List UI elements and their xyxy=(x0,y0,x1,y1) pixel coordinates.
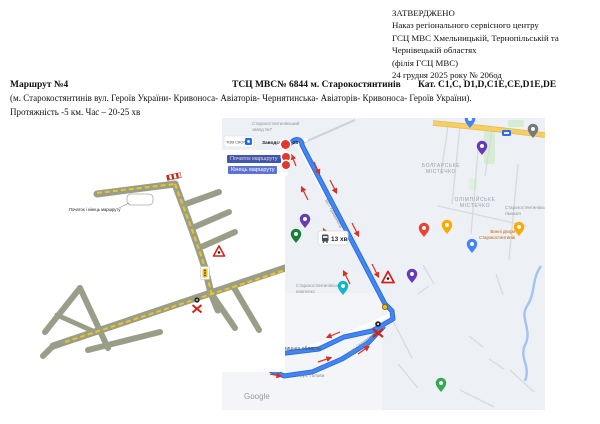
route-flag-icon xyxy=(167,173,182,181)
schematic-map: Початок і кінець маршруту xyxy=(35,150,285,372)
route-start-label: Початок маршруту xyxy=(227,155,281,163)
approval-line: Чернівецькій областях xyxy=(392,44,596,56)
poi-top-label: Старокостянтинівський xyxy=(252,121,300,126)
park-area xyxy=(508,120,524,127)
street-label: вул. Голови xyxy=(300,373,325,378)
approval-block: ЗАТВЕРДЖЕНО Наказ регіонального сервісно… xyxy=(392,7,596,81)
poi-complex-label: Старокостянтинівський xyxy=(296,283,344,288)
district-label: МІСТЕЧКО xyxy=(426,169,456,175)
poi-school-label: гімназія xyxy=(505,211,521,216)
district-label: МІСТЕЧКО xyxy=(460,203,490,209)
route-parameters: Протяжність -5 км. Час – 20-25 хв xyxy=(10,107,140,117)
route-description: (м. Старокостянтинів вул. Героїв України… xyxy=(10,93,472,103)
license-categories: Кат. C1,C, D1,D,C1E,CE,D1E,DE xyxy=(418,80,556,90)
district-label: ОЛІМПІЙСЬКЕ xyxy=(455,195,496,203)
callout-bubble xyxy=(127,194,153,205)
poi-shop-label: Винні двори xyxy=(490,229,515,234)
callout-leader-line xyxy=(119,203,129,208)
google-watermark: Google xyxy=(244,392,270,401)
poi-school-label: Старокостянтинівська xyxy=(505,205,545,210)
approval-line: ГСЦ МВС Хмельницькій, Тернопільській та xyxy=(392,32,596,44)
route-number: Маршрут №4 xyxy=(10,80,68,90)
approval-line: ЗАТВЕРДЖЕНО xyxy=(392,7,596,19)
bus-stop-icon xyxy=(502,130,511,136)
route-point-marker xyxy=(282,153,290,161)
approval-line: (філія ГСЦ МВС) xyxy=(392,57,596,69)
time-badge-text: 13 хв xyxy=(331,236,348,243)
route-end-label: Кінець маршруту xyxy=(228,166,277,174)
schematic-map-canvas: Початок і кінець маршруту xyxy=(35,150,285,372)
approval-line: Наказ регіонального сервісного центру xyxy=(392,19,596,31)
warning-triangle-icon xyxy=(214,246,225,256)
poi-shop-label: Старокостянтинів xyxy=(479,235,516,240)
poi-skopi-card: ТОВ СКОПІ xyxy=(224,136,254,147)
poi-skopi-label: ТОВ СКОПІ xyxy=(226,140,247,145)
transit-time-badge: 13 хв xyxy=(318,231,348,245)
start-end-label: Початок і кінець маршруту xyxy=(69,207,121,212)
service-center-title: ТСЦ МВС№ 6844 м. Старокостянтинів xyxy=(232,80,401,90)
traffic-light-icon xyxy=(201,267,210,280)
poi-complex-label: комплекс xyxy=(296,289,316,294)
poi-top-label: завод №7 xyxy=(252,127,273,132)
traffic-light-icon xyxy=(382,304,387,309)
document-page: ЗАТВЕРДЖЕНО Наказ регіонального сервісно… xyxy=(0,0,600,424)
route-point-marker xyxy=(282,161,290,169)
route-start-marker xyxy=(281,140,290,149)
